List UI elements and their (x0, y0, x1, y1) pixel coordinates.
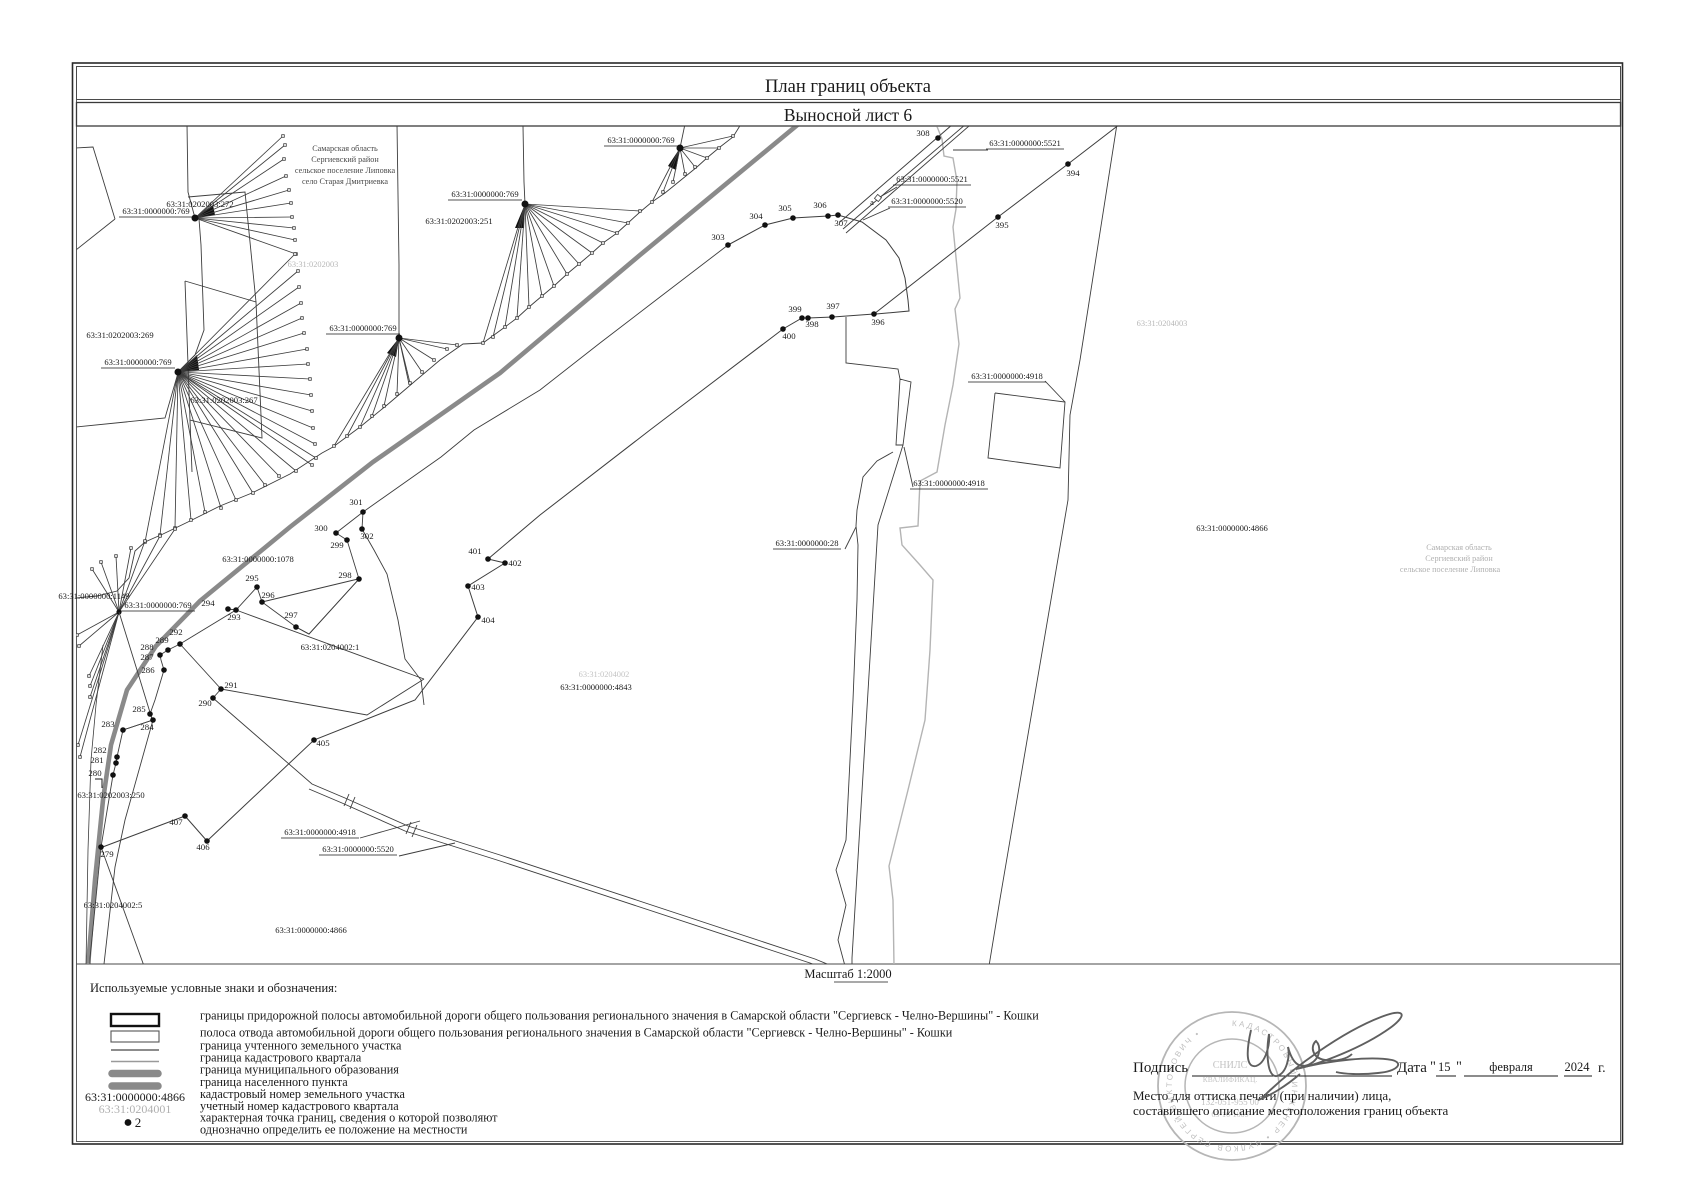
svg-text:401: 401 (468, 546, 481, 556)
svg-text:Используемые условные знаки и: Используемые условные знаки и обозначени… (90, 981, 337, 995)
svg-text:294: 294 (201, 598, 215, 608)
svg-text:63:31:0204003: 63:31:0204003 (1137, 319, 1188, 328)
svg-text:63:31:0000000:769: 63:31:0000000:769 (104, 357, 171, 367)
svg-text:306: 306 (813, 200, 827, 210)
svg-text:63:31:0000000:5521: 63:31:0000000:5521 (989, 138, 1061, 148)
svg-text:308: 308 (916, 128, 930, 138)
svg-text:полоса отвода автомобильной до: полоса отвода автомобильной дороги общег… (200, 1026, 953, 1040)
svg-text:сельское поселение Липовка: сельское поселение Липовка (295, 166, 396, 175)
svg-text:составившего описание местопол: составившего описание местоположения гра… (1133, 1103, 1449, 1118)
svg-text:400: 400 (782, 331, 796, 341)
svg-text:394: 394 (1066, 168, 1080, 178)
svg-text:План границ объекта: План границ объекта (765, 77, 931, 97)
svg-text:63:31:0000000:4918: 63:31:0000000:4918 (971, 371, 1043, 381)
svg-text:395: 395 (995, 220, 1009, 230)
svg-text:282: 282 (93, 745, 106, 755)
svg-text:407: 407 (169, 817, 183, 827)
svg-text:399: 399 (788, 304, 802, 314)
svg-text:304: 304 (749, 211, 763, 221)
svg-text:288: 288 (140, 642, 154, 652)
svg-text:63:31:0202003: 63:31:0202003 (288, 260, 339, 269)
svg-text:302: 302 (360, 531, 373, 541)
svg-text:305: 305 (778, 203, 792, 213)
svg-text:284: 284 (140, 722, 154, 732)
svg-text:293: 293 (227, 612, 241, 622)
svg-text:Место для оттиска печати (при: Место для оттиска печати (при наличии) л… (1133, 1088, 1391, 1103)
svg-text:296: 296 (261, 590, 275, 600)
svg-text:292: 292 (169, 627, 182, 637)
svg-text:63:31:0000000:28: 63:31:0000000:28 (775, 538, 838, 548)
svg-text:63:31:0204002: 63:31:0204002 (579, 670, 630, 679)
svg-text:283: 283 (101, 719, 115, 729)
svg-text:63:31:0204001: 63:31:0204001 (99, 1102, 172, 1116)
svg-text:Выносной лист 6: Выносной лист 6 (784, 105, 912, 125)
svg-text:2: 2 (135, 1115, 142, 1130)
svg-text:63:31:0000000:4918: 63:31:0000000:4918 (913, 478, 985, 488)
svg-text:Сергиевский район: Сергиевский район (1425, 554, 1493, 563)
svg-text:СНИЛС: СНИЛС (1213, 1060, 1248, 1071)
svg-text:2024: 2024 (1565, 1060, 1591, 1074)
svg-text:15: 15 (1438, 1060, 1451, 1074)
svg-text:63:31:0000000:4918: 63:31:0000000:4918 (284, 827, 356, 837)
svg-text:сельское поселение Липовка: сельское поселение Липовка (1400, 565, 1501, 574)
svg-text:63:31:0000000:4866: 63:31:0000000:4866 (1196, 523, 1268, 533)
svg-text:Подпись: Подпись (1133, 1060, 1188, 1076)
svg-text:": " (1456, 1059, 1462, 1075)
svg-text:300: 300 (314, 523, 328, 533)
svg-text:63:31:0000000:769: 63:31:0000000:769 (451, 189, 518, 199)
svg-text:63:31:0000000:769: 63:31:0000000:769 (124, 600, 191, 610)
svg-text:281: 281 (90, 755, 103, 765)
svg-text:63:31:0000000:1149: 63:31:0000000:1149 (58, 591, 129, 601)
svg-text:295: 295 (245, 573, 259, 583)
svg-text:280: 280 (88, 768, 102, 778)
svg-text:63:31:0000000:769: 63:31:0000000:769 (329, 323, 396, 333)
svg-text:303: 303 (711, 232, 725, 242)
svg-text:63:31:0000000:1078: 63:31:0000000:1078 (222, 554, 294, 564)
svg-text:63:31:0000000:769: 63:31:0000000:769 (607, 135, 674, 145)
svg-text:397: 397 (826, 301, 840, 311)
svg-text:63:31:0202003:272: 63:31:0202003:272 (166, 199, 233, 209)
svg-text:Самарская область: Самарская область (1426, 543, 1492, 552)
svg-text:63:31:0000000:4866: 63:31:0000000:4866 (275, 925, 347, 935)
svg-text:г.: г. (1598, 1061, 1606, 1076)
svg-text:290: 290 (198, 698, 212, 708)
svg-text:396: 396 (871, 317, 885, 327)
svg-text:289: 289 (155, 635, 169, 645)
svg-text:село Старая Дмитриевка: село Старая Дмитриевка (302, 177, 388, 186)
svg-text:406: 406 (196, 842, 210, 852)
svg-text:63:31:0000000:4843: 63:31:0000000:4843 (560, 682, 632, 692)
svg-text:Масштаб 1:2000: Масштаб 1:2000 (804, 967, 891, 981)
svg-text:Дата: Дата (1397, 1060, 1427, 1076)
svg-text:а: а (870, 198, 874, 207)
svg-text:291: 291 (224, 680, 237, 690)
svg-text:299: 299 (330, 540, 344, 550)
svg-text:297: 297 (284, 610, 298, 620)
svg-text:Сергиевский район: Сергиевский район (311, 155, 379, 164)
svg-text:63:31:0000000:5521: 63:31:0000000:5521 (896, 174, 968, 184)
svg-text:398: 398 (805, 319, 819, 329)
svg-text:404: 404 (481, 615, 495, 625)
svg-text:405: 405 (316, 738, 330, 748)
svg-text:63:31:0000000:5520: 63:31:0000000:5520 (891, 196, 963, 206)
svg-text:63:31:0202003:251: 63:31:0202003:251 (425, 216, 492, 226)
svg-text:279: 279 (100, 849, 114, 859)
svg-text:63:31:0204002:5: 63:31:0204002:5 (84, 900, 143, 910)
svg-text:63:31:0000000:5520: 63:31:0000000:5520 (322, 844, 394, 854)
svg-text:границы придорожной полосы авт: границы придорожной полосы автомобильной… (200, 1009, 1039, 1023)
svg-text:285: 285 (132, 704, 146, 714)
svg-text:307: 307 (834, 218, 848, 228)
svg-text:63:31:0204002:1: 63:31:0204002:1 (301, 642, 360, 652)
svg-text:286: 286 (141, 665, 155, 675)
svg-text:298: 298 (338, 570, 352, 580)
svg-text:287: 287 (140, 652, 154, 662)
svg-text:63:31:0202003:250: 63:31:0202003:250 (77, 790, 144, 800)
svg-text:февраля: февраля (1489, 1060, 1533, 1074)
svg-text:однозначно определить ее полож: однозначно определить ее положение на ме… (200, 1123, 468, 1137)
svg-text:63:31:0202003:267: 63:31:0202003:267 (190, 395, 258, 405)
svg-text:": " (1430, 1059, 1436, 1075)
svg-text:402: 402 (508, 558, 521, 568)
svg-text:301: 301 (349, 497, 362, 507)
svg-text:Самарская область: Самарская область (312, 144, 378, 153)
svg-text:63:31:0202003:269: 63:31:0202003:269 (86, 330, 153, 340)
svg-text:403: 403 (471, 582, 485, 592)
